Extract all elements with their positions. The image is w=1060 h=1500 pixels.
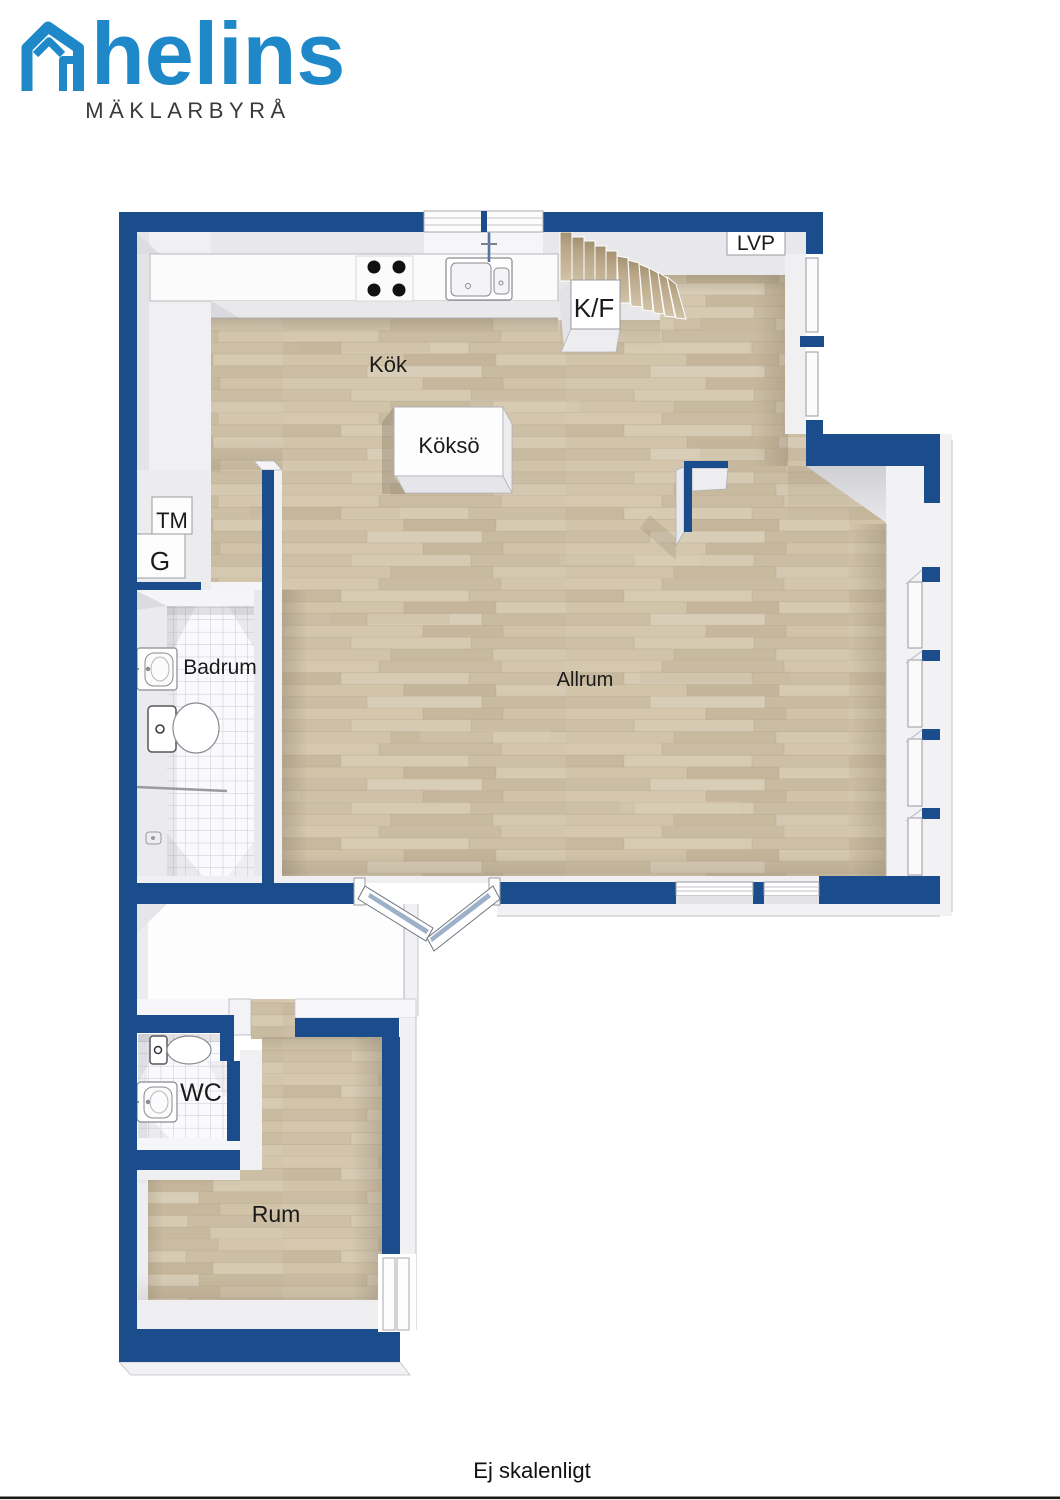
svg-text:G: G: [150, 546, 170, 576]
svg-text:helins: helins: [91, 4, 345, 103]
svg-text:Allrum: Allrum: [557, 669, 614, 691]
svg-text:MÄKLARBYRÅ: MÄKLARBYRÅ: [85, 98, 290, 123]
svg-text:Kök: Kök: [369, 352, 408, 377]
svg-text:Köksö: Köksö: [418, 433, 479, 458]
svg-text:K/F: K/F: [574, 293, 614, 323]
svg-text:TM: TM: [156, 508, 188, 533]
svg-text:WC: WC: [180, 1079, 222, 1107]
svg-text:Rum: Rum: [252, 1201, 301, 1227]
svg-text:LVP: LVP: [737, 232, 775, 255]
svg-text:Ej skalenligt: Ej skalenligt: [473, 1458, 590, 1483]
svg-text:Badrum: Badrum: [183, 656, 257, 679]
